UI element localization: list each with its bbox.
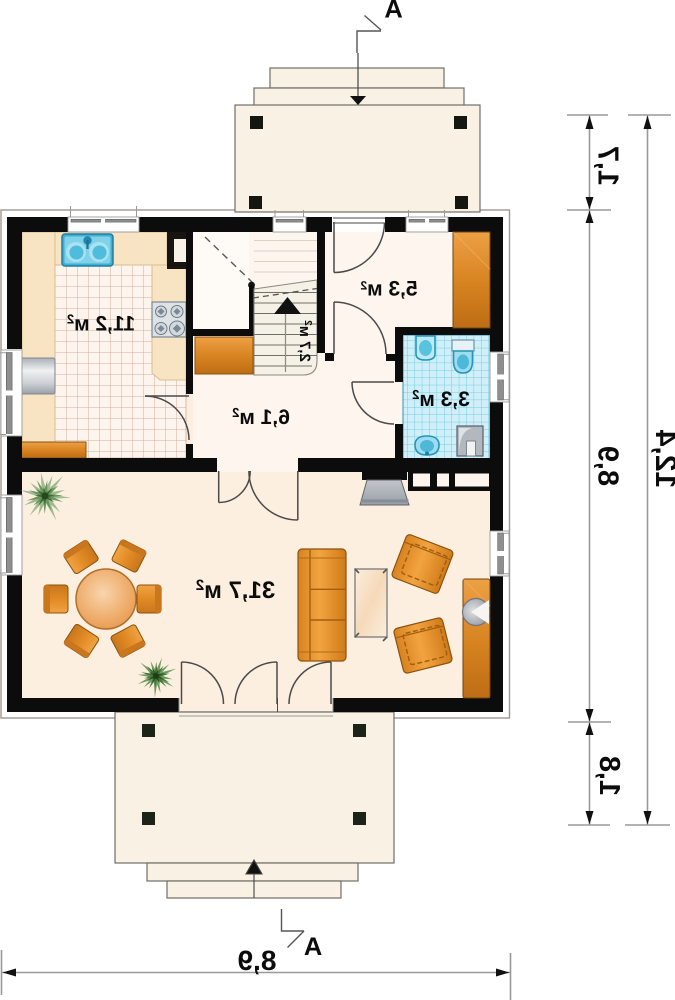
svg-text:12,4: 12,4 xyxy=(649,429,675,488)
svg-text:11,2 м2: 11,2 м2 xyxy=(67,312,135,336)
svg-text:A: A xyxy=(304,933,322,961)
svg-text:3,3 м2: 3,3 м2 xyxy=(412,387,470,411)
svg-text:6,1 м2: 6,1 м2 xyxy=(232,405,290,429)
svg-text:5,3 м2: 5,3 м2 xyxy=(360,278,418,301)
svg-text:31,7 м2: 31,7 м2 xyxy=(196,577,275,604)
svg-text:A: A xyxy=(384,0,402,24)
svg-text:1,7: 1,7 xyxy=(592,146,624,186)
svg-text:1,8: 1,8 xyxy=(593,756,625,796)
svg-text:8,9: 8,9 xyxy=(238,945,277,976)
svg-text:8,9: 8,9 xyxy=(592,446,624,486)
svg-text:2,7 м2: 2,7 м2 xyxy=(296,320,313,362)
